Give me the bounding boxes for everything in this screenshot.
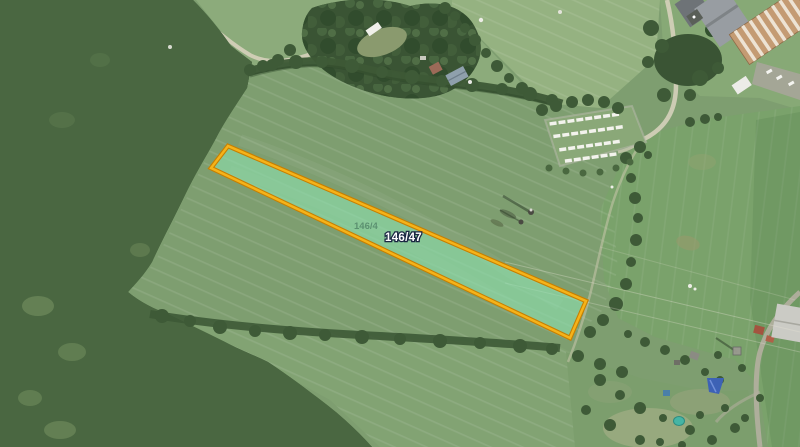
parking-lot-tree [550, 100, 562, 112]
tree-blob [594, 358, 606, 370]
parcel-label: 146/47 [385, 232, 422, 244]
tree-blob [685, 117, 695, 127]
tree-blob [626, 173, 636, 183]
garden-tree [701, 368, 709, 376]
forest-clearing [18, 390, 42, 406]
forest-clearing [44, 421, 76, 439]
garden-tree [656, 438, 664, 446]
hedgerow-tree [345, 59, 359, 73]
hedgerow-tree [474, 337, 486, 349]
hedgerow-tree [469, 34, 481, 46]
field-detail [558, 10, 562, 14]
garden-tree [635, 435, 645, 445]
hedgerow-tree [496, 83, 508, 95]
hedgerow-tree [465, 78, 479, 92]
hedgerow-tree [439, 2, 451, 14]
field-detail [603, 408, 693, 447]
tree-blob [616, 366, 628, 378]
parking-lot-tree [566, 96, 578, 108]
pylon-part [530, 209, 533, 212]
garden-tree [594, 374, 606, 386]
hedgerow-tree [405, 70, 419, 84]
aerial-map-canvas[interactable]: 146/4 146/47 [0, 0, 800, 447]
tree-blob [620, 278, 632, 290]
parking-lot-tree [582, 94, 594, 106]
garden-tree [756, 394, 764, 402]
farm-white-object [468, 80, 472, 84]
garden-tree [730, 423, 740, 433]
hedgerow-tree [516, 82, 528, 94]
garden-tree [721, 404, 729, 412]
parking-lot-tree [536, 104, 548, 116]
parking-lot-tree [644, 151, 652, 159]
hedgerow-tree [394, 333, 406, 345]
garden-tree [640, 337, 650, 347]
garden-tree [660, 345, 670, 355]
farm-small-structure [420, 56, 426, 60]
parking-lot-tree [627, 159, 634, 166]
pylon-part [733, 347, 741, 355]
hedgerow-tree [289, 55, 303, 69]
garden-shed [674, 360, 680, 365]
parking-lot-tree [598, 96, 610, 108]
hedgerow-tree [244, 64, 256, 76]
parking-lot-tree [613, 165, 620, 172]
tree-blob [643, 20, 659, 36]
parking-lot-tree [634, 141, 646, 153]
garden-tree [741, 414, 749, 422]
tree-blob [642, 56, 654, 68]
garden-tree [581, 405, 591, 415]
tree-blob [584, 326, 596, 338]
parking-lot-tree [612, 102, 624, 114]
tree-blob [630, 234, 642, 246]
forest-clearing [58, 343, 86, 361]
hedgerow-tree [284, 44, 296, 56]
hedgerow-tree [433, 334, 447, 348]
tree-blob [626, 257, 636, 267]
forest-clearing [168, 45, 172, 49]
garden-tree [738, 364, 746, 372]
hedgerow-tree [283, 326, 297, 340]
garden-tree [615, 390, 625, 400]
map-viewport: 146/4 146/47 [0, 0, 800, 447]
hedgerow-tree [546, 343, 558, 355]
hedgerow-tree [213, 320, 227, 334]
parking-lot-tree [580, 170, 587, 177]
field-detail [688, 154, 716, 170]
parking-lot-tree [563, 168, 570, 175]
hedgerow-tree [155, 309, 169, 323]
hedgerow-tree [450, 11, 460, 21]
pylon-part [519, 220, 524, 225]
hedgerow-tree [355, 330, 369, 344]
pylon-part [611, 186, 614, 189]
hedgerow-tree [249, 325, 261, 337]
tree-blob [629, 192, 641, 204]
hedgerow-tree [316, 56, 328, 68]
parking-lot-tree [546, 165, 553, 172]
tree-blob [572, 350, 584, 362]
forest-clearing [130, 243, 150, 257]
field-detail [688, 284, 692, 288]
neighbor-parcel-label: 146/4 [354, 221, 378, 232]
garden-tree [680, 355, 690, 365]
tree-blob [692, 70, 708, 86]
garden-tree [659, 414, 667, 422]
hedgerow-tree [504, 73, 514, 83]
forest-clearing [90, 53, 110, 67]
tree-blob [657, 88, 671, 102]
small-blue-shed [663, 390, 670, 396]
tree-blob [633, 213, 643, 223]
garden-pool [674, 417, 685, 426]
hedgerow-tree [491, 60, 503, 72]
field-detail [588, 381, 632, 403]
hedgerow-tree [319, 329, 331, 341]
hedgerow-tree [513, 339, 527, 353]
garden-tree [707, 435, 717, 445]
hedgerow-tree [460, 23, 470, 33]
parking-lot-tree [597, 169, 604, 176]
tree-blob [712, 62, 724, 74]
hedgerow-tree [481, 48, 491, 58]
hedgerow-tree [272, 54, 284, 66]
garden-tree [634, 402, 646, 414]
forest-clearing [49, 112, 75, 128]
tree-blob [714, 113, 722, 121]
garden-tree [714, 351, 722, 359]
field-detail [694, 288, 697, 291]
hedgerow-tree [257, 60, 269, 72]
garden-tree [604, 419, 616, 431]
garden-tree [685, 425, 695, 435]
field-detail [479, 18, 483, 22]
hedgerow-tree [376, 66, 388, 78]
tree-blob [684, 89, 696, 101]
garden-tree [696, 411, 704, 419]
hedgerow-tree [184, 315, 196, 327]
tree-blob [700, 114, 710, 124]
tree-blob [597, 314, 609, 326]
garden-tree [624, 330, 632, 338]
tree-blob [655, 39, 669, 53]
forest-clearing [22, 296, 54, 316]
